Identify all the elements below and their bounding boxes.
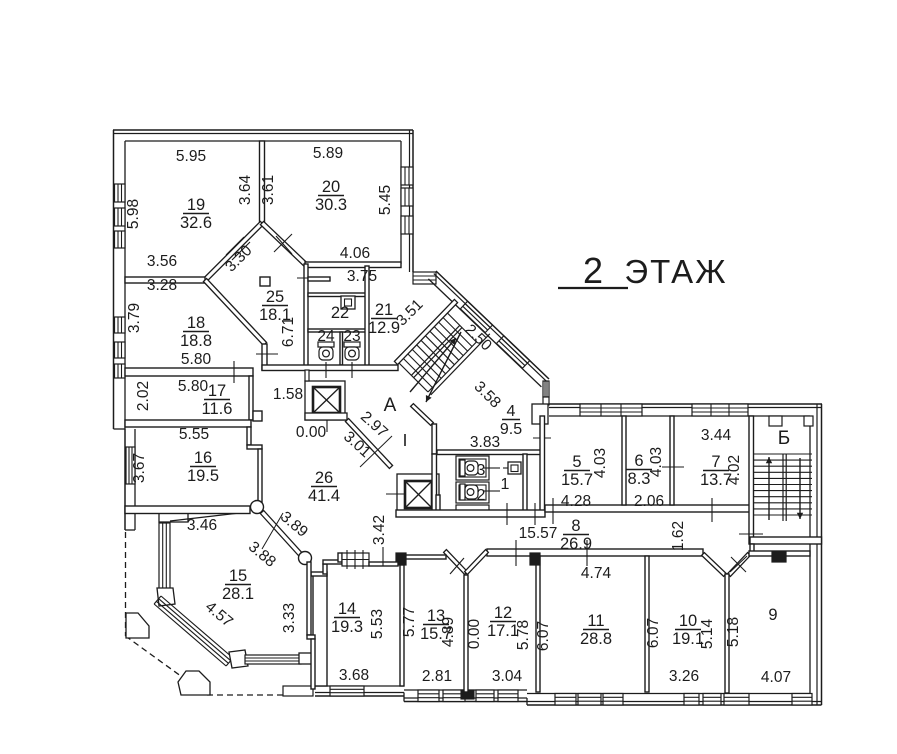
svg-text:16: 16	[194, 449, 212, 467]
svg-text:11: 11	[587, 612, 604, 630]
svg-text:1.58: 1.58	[273, 386, 303, 403]
svg-text:3.75: 3.75	[347, 268, 377, 285]
svg-text:3.04: 3.04	[492, 668, 523, 685]
svg-text:5.80: 5.80	[178, 378, 209, 395]
svg-text:3.83: 3.83	[470, 434, 500, 451]
svg-text:ЭТАЖ: ЭТАЖ	[624, 253, 727, 290]
svg-text:9: 9	[768, 606, 777, 624]
svg-text:3.44: 3.44	[701, 427, 732, 444]
svg-text:10: 10	[679, 612, 697, 630]
svg-text:23: 23	[343, 328, 360, 345]
svg-text:20: 20	[322, 178, 340, 196]
svg-text:18.8: 18.8	[180, 332, 212, 350]
svg-text:3.26: 3.26	[669, 668, 699, 685]
svg-text:5: 5	[572, 453, 581, 471]
svg-text:6.71: 6.71	[280, 317, 297, 347]
svg-text:4.03: 4.03	[592, 448, 609, 478]
svg-text:0.00: 0.00	[296, 424, 327, 441]
svg-text:3.46: 3.46	[187, 517, 217, 534]
svg-text:12: 12	[494, 604, 512, 622]
svg-text:5.78: 5.78	[515, 620, 532, 650]
svg-text:17: 17	[208, 382, 226, 400]
svg-text:24: 24	[317, 328, 335, 345]
svg-text:1.62: 1.62	[670, 521, 687, 551]
svg-text:5.45: 5.45	[377, 185, 394, 215]
svg-text:3.64: 3.64	[237, 175, 254, 206]
svg-text:2.02: 2.02	[135, 381, 152, 411]
svg-text:30.3: 30.3	[315, 196, 347, 214]
svg-text:3.68: 3.68	[339, 667, 369, 684]
svg-text:28.1: 28.1	[222, 585, 254, 603]
svg-text:5.98: 5.98	[125, 199, 142, 229]
svg-text:12.9: 12.9	[368, 319, 400, 337]
svg-text:26: 26	[315, 469, 333, 487]
svg-text:5.14: 5.14	[699, 619, 716, 650]
svg-text:4.74: 4.74	[581, 565, 612, 582]
svg-text:26.9: 26.9	[560, 535, 592, 553]
svg-text:4: 4	[507, 403, 516, 420]
svg-text:4.28: 4.28	[561, 493, 591, 510]
svg-text:0.00: 0.00	[466, 619, 483, 650]
svg-text:5.80: 5.80	[181, 351, 212, 368]
svg-text:5.77: 5.77	[401, 607, 418, 637]
svg-text:1: 1	[501, 476, 510, 493]
svg-text:22: 22	[331, 304, 349, 322]
svg-text:Б: Б	[778, 428, 790, 449]
svg-text:5.95: 5.95	[176, 148, 206, 165]
svg-text:3.33: 3.33	[281, 603, 298, 633]
svg-text:8: 8	[571, 517, 580, 535]
svg-text:5.18: 5.18	[725, 617, 742, 647]
svg-text:6.07: 6.07	[645, 618, 662, 648]
svg-text:21: 21	[375, 301, 393, 319]
svg-text:19.3: 19.3	[331, 618, 363, 636]
svg-text:15.7: 15.7	[561, 471, 593, 489]
svg-text:6: 6	[634, 452, 643, 470]
svg-text:5.55: 5.55	[179, 426, 209, 443]
svg-text:4.02: 4.02	[726, 455, 743, 485]
svg-text:А: А	[384, 395, 397, 416]
svg-text:2.81: 2.81	[422, 668, 452, 685]
svg-text:32.6: 32.6	[180, 214, 212, 232]
svg-text:15: 15	[229, 567, 247, 585]
svg-text:2: 2	[477, 487, 486, 504]
svg-text:2: 2	[583, 250, 603, 291]
svg-text:4.06: 4.06	[340, 245, 370, 262]
svg-text:28.8: 28.8	[580, 630, 612, 648]
svg-text:4.07: 4.07	[761, 669, 791, 686]
svg-text:41.4: 41.4	[308, 487, 340, 505]
svg-text:14: 14	[338, 600, 356, 618]
svg-text:18: 18	[187, 314, 205, 332]
svg-text:4.89: 4.89	[440, 617, 457, 647]
svg-text:2.06: 2.06	[634, 493, 664, 510]
svg-text:11.6: 11.6	[202, 400, 233, 418]
svg-text:9.5: 9.5	[500, 421, 522, 438]
svg-text:3.79: 3.79	[126, 303, 143, 333]
svg-text:3.56: 3.56	[147, 253, 177, 270]
svg-text:19.5: 19.5	[187, 467, 219, 485]
svg-text:7: 7	[711, 453, 720, 471]
svg-text:6.07: 6.07	[535, 621, 552, 651]
svg-text:5.53: 5.53	[369, 609, 386, 639]
svg-text:19: 19	[187, 196, 205, 214]
svg-text:3: 3	[477, 462, 486, 479]
svg-text:3.28: 3.28	[147, 277, 177, 294]
svg-text:3.61: 3.61	[260, 175, 277, 205]
svg-text:3.42: 3.42	[371, 515, 388, 545]
svg-text:3.67: 3.67	[131, 453, 148, 483]
svg-text:15.57: 15.57	[519, 525, 558, 542]
svg-text:25: 25	[266, 288, 284, 306]
svg-text:4.03: 4.03	[648, 447, 665, 477]
svg-text:5.89: 5.89	[313, 145, 343, 162]
